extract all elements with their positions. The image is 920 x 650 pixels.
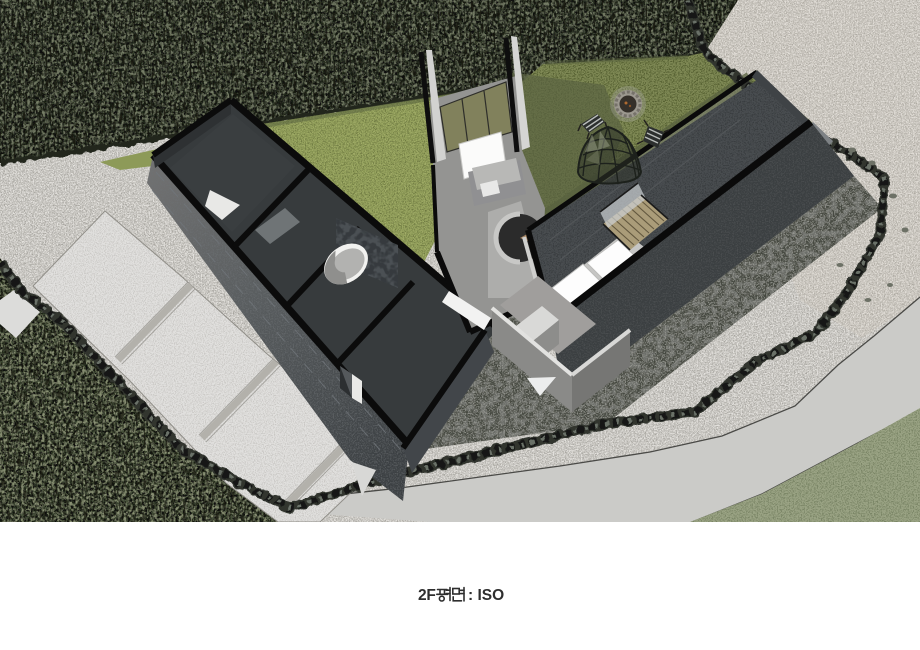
svg-text:: ISO: : ISO [468,587,504,604]
svg-text:2F: 2F [418,587,436,604]
